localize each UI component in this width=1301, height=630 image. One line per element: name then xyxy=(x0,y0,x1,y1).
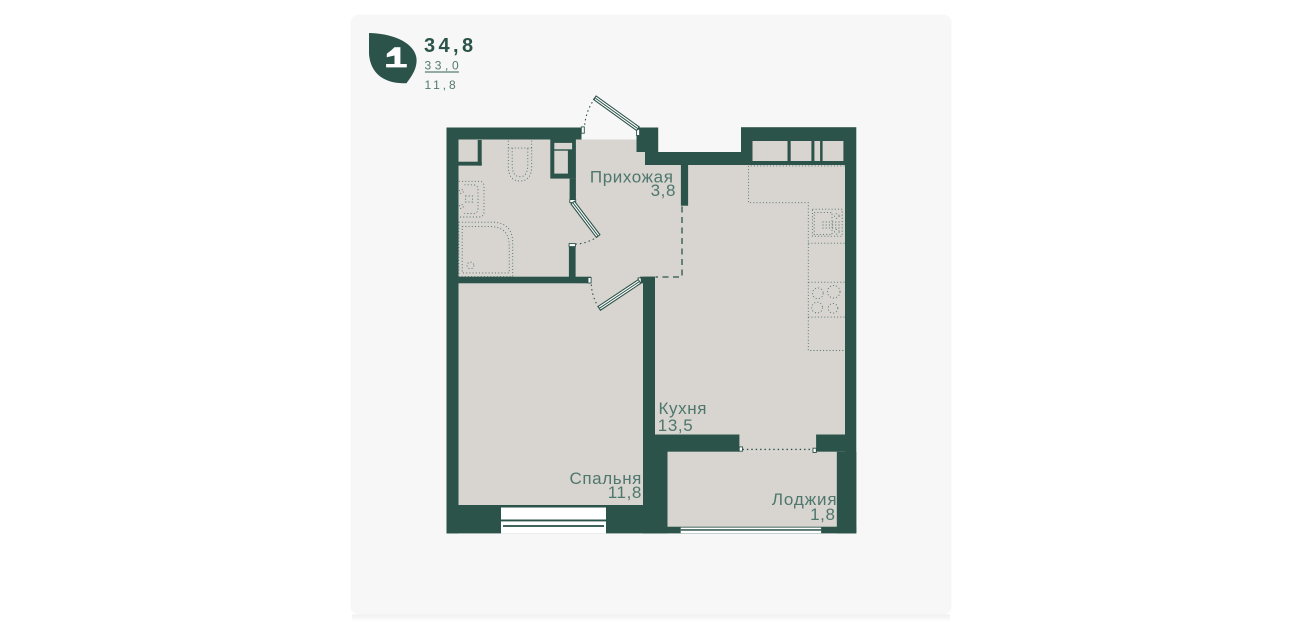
svg-text:34,8: 34,8 xyxy=(424,35,477,57)
svg-text:11,8: 11,8 xyxy=(425,78,459,92)
svg-text:33,0: 33,0 xyxy=(425,59,463,73)
svg-text:3,8: 3,8 xyxy=(651,181,676,200)
svg-text:1,8: 1,8 xyxy=(810,505,835,524)
svg-text:11,8: 11,8 xyxy=(608,483,642,502)
svg-text:13,5: 13,5 xyxy=(658,416,694,435)
